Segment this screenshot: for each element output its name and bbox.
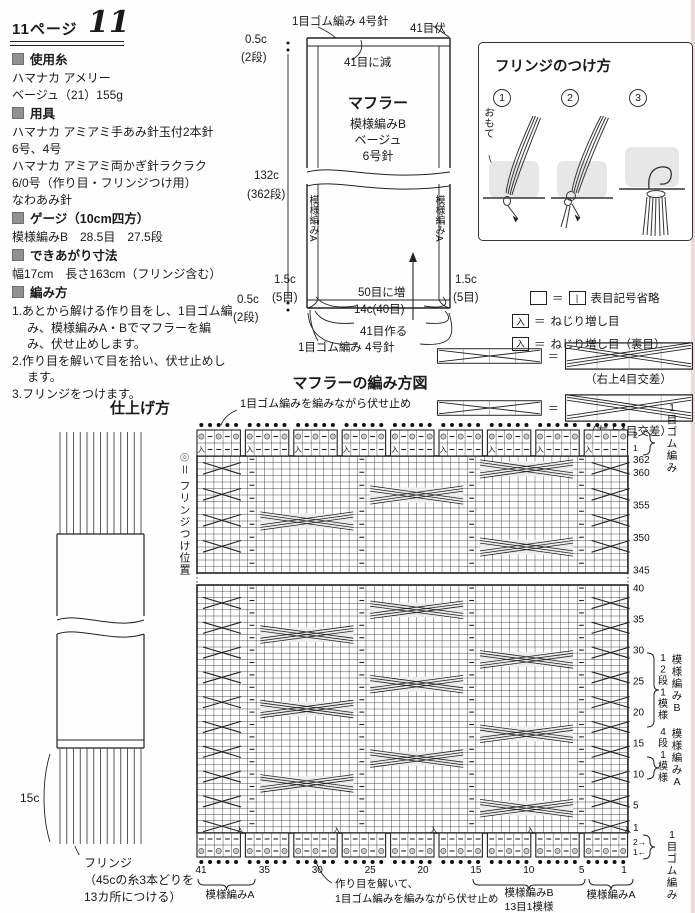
schematic-bottom-rib-label: 1目ゴム編み 4号針 [298, 339, 395, 355]
yarn-line: ベージュ（21）155g [12, 87, 234, 104]
width-label: 14c(40目) [354, 301, 405, 317]
section-bullet-icon [12, 107, 24, 119]
dim-bottom-rib-rows: (2段) [233, 309, 259, 325]
cable-legend: ＝ （右上4目交差） ＝ [437, 342, 693, 446]
row-number: 40 [633, 584, 645, 595]
knit-reference-icon: | [569, 291, 586, 305]
patternB-name: 模様編みB [672, 654, 683, 714]
tools-line: ハマナカ アミアミ両かぎ針ラクラク [12, 158, 234, 175]
piece-color: ベージュ [333, 131, 423, 148]
tools-header: 用具 [12, 106, 234, 123]
direction-arrow-icon [409, 252, 417, 262]
chart-bottom-note: 1目ゴム編みを編みながら伏せ止め [335, 892, 498, 905]
dim-body-rows: (362段) [247, 186, 285, 202]
col-number: 10 [523, 865, 535, 876]
decrease-symbol: 入 [488, 445, 496, 454]
schematic-decrease-label: 41目に減 [344, 54, 391, 70]
cable-right-caption: （右上4目交差） [585, 371, 693, 387]
increase-symbol: 入 [236, 826, 244, 835]
row-number: 30 [633, 646, 645, 657]
increase-symbol: 入 [333, 826, 341, 835]
bracket-label: 模様編みB [504, 886, 553, 899]
knitting-chart: 入入入入入入入入入入入入入入21362360355350345403530252… [185, 395, 690, 913]
increase-label: 50目に増 [358, 284, 405, 300]
side-pattern-right: 模様編みA [431, 195, 446, 242]
dim-top-rib: 0.5c [245, 34, 267, 46]
row-number: 20 [633, 708, 645, 719]
cable-right-cross-icon [565, 342, 693, 370]
col-number: 30 [312, 865, 324, 876]
knit-symbol-icon [530, 291, 547, 305]
step-1-badge: 1 [493, 89, 511, 107]
size-line: 幅17cm 長さ163cm（フリンジ含む） [12, 266, 234, 283]
row-number: 360 [633, 468, 650, 479]
col-number: 20 [418, 865, 430, 876]
fringe-note: フリンジ （45cの糸3本どりを 13カ所につける） [84, 855, 194, 906]
legend-row: 入 ＝ ねじり増し目 [512, 313, 666, 329]
pull-arrow-icon [513, 216, 519, 223]
cable-chart-symbol-icon [437, 400, 542, 416]
fringe-length-label: 15c [20, 791, 39, 805]
chart-bottom-note: 作り目を解いて、 [335, 877, 418, 890]
page-number-label: 11ページ [12, 18, 78, 39]
section-bullet-icon [12, 212, 24, 224]
yarn-line: ハマナカ アメリー [12, 70, 234, 87]
fringe-position-note: ◎＝ フリンジつけ位置 [176, 450, 192, 576]
pattern-number: 11 [88, 8, 130, 38]
piece-name: マフラー [333, 92, 423, 113]
row-number: 10 [633, 770, 645, 781]
col-number: 15 [470, 865, 482, 876]
legend-text: ねじり増し目 [551, 313, 620, 329]
col-number: 35 [259, 865, 271, 876]
cable-legend-row: ＝ [437, 394, 693, 422]
bracket-label: 模様編みA [586, 888, 635, 901]
section-bullet-icon [12, 53, 24, 65]
piece-needle: 6号針 [333, 147, 423, 164]
materials-column: 使用糸 ハマナカ アメリー ベージュ（21）155g 用具 ハマナカ アミアミ手… [12, 50, 234, 402]
tools-line: 6号、4号 [12, 141, 234, 158]
decrease-symbol: 入 [440, 445, 448, 454]
row-number: 5 [633, 801, 639, 812]
rib-row-number: 2→ [633, 837, 646, 847]
bracket-label: 13目1模様 [504, 900, 554, 913]
howto-header: 編み方 [12, 285, 234, 302]
gauge-line: 模様編みB 28.5目 27.5段 [12, 229, 234, 246]
rib-bottom-label: 1目ゴム編み [667, 829, 678, 901]
decrease-symbol: 入 [585, 445, 593, 454]
dim-side-left: 1.5c [274, 274, 296, 286]
finishing-diagram [20, 420, 200, 855]
dim-body-length: 132c [254, 170, 279, 182]
dim-top-rib-rows: (2段) [241, 49, 267, 65]
increase-symbol: 入 [527, 826, 535, 835]
equals-sign: ＝ [548, 348, 559, 364]
dim-side-right: 1.5c [455, 274, 477, 286]
row-number: 362 [633, 455, 650, 466]
cable-left-cross-icon [565, 394, 693, 422]
decrease-symbol: 入 [536, 445, 544, 454]
cast-on-label: 41目作る [360, 323, 407, 339]
increase-symbol: 入 [430, 826, 438, 835]
tools-line: なわあみ針 [12, 192, 234, 209]
row-number: 25 [633, 677, 645, 688]
patternB-repeat: 12段1模様 [658, 653, 668, 722]
row-number: 35 [633, 615, 645, 626]
size-header: できあがり寸法 [12, 248, 234, 265]
m1-twisted-icon: 入 [512, 314, 529, 328]
decrease-symbol: 入 [246, 445, 254, 454]
front-side-label: おもて [482, 107, 497, 139]
howto-step: 2.作り目を解いて目を拾い、伏せ止めします。 [12, 353, 234, 386]
tools-line: ハマナカ アミアミ手あみ針玉付2本針 [12, 124, 234, 141]
section-bullet-icon [12, 249, 24, 261]
col-number: 25 [365, 865, 377, 876]
patternA-repeat: 4段1模様 [658, 727, 668, 784]
header-rule [10, 41, 124, 46]
chart-top-note: 1目ゴム編みを編みながら伏せ止め [240, 396, 411, 410]
chart-title: マフラーの編み方図 [240, 372, 480, 393]
section-bullet-icon [12, 286, 24, 298]
cable-legend-row: ＝ [437, 342, 693, 370]
schematic-top-rib-label: 1目ゴム編み 4号針 [292, 13, 389, 29]
fringe-panel-title: フリンジのつけ方 [495, 55, 611, 76]
col-number: 1 [621, 865, 627, 876]
row-number: 1 [633, 823, 639, 834]
increase-symbol: 入 [623, 826, 631, 835]
patternA-name: 模様編みA [672, 728, 683, 788]
schematic-bindoff-label: 41目伏 [410, 20, 446, 36]
col-number: 5 [579, 865, 585, 876]
gauge-header: ゲージ（10cm四方） [12, 211, 234, 228]
row-number: 15 [633, 739, 645, 750]
rib-row-number: 1← [633, 847, 646, 857]
equals-sign: ＝ [534, 313, 546, 329]
decrease-symbol: 入 [294, 445, 302, 454]
row-number: 350 [633, 533, 650, 544]
equals-sign: ＝ [552, 290, 564, 306]
col-number: 41 [195, 865, 207, 876]
dim-side-left-sts: (5目) [272, 289, 298, 305]
fringe-position-icon: ◎ [178, 450, 190, 464]
decrease-symbol: 入 [391, 445, 399, 454]
dim-side-right-sts: (5目) [453, 289, 479, 305]
legend-text: 表目記号省略 [591, 290, 660, 306]
legend-row: ＝ | 表目記号省略 [530, 290, 666, 306]
pattern-page: { "header": {"page_label": "11ページ", "num… [0, 0, 695, 913]
cable-chart-symbol-icon [437, 348, 542, 364]
piece-pattern: 模様編みB [333, 115, 423, 132]
tools-line: 6/0号（作り目・フリンジつけ用） [12, 175, 234, 192]
cable-left-caption: （左上4目交差） [585, 423, 693, 439]
step-2-badge: 2 [561, 89, 579, 107]
finishing-title: 仕上げ方 [95, 397, 185, 418]
bracket-label: 模様編みA [205, 888, 254, 901]
fringe-instructions-panel: フリンジのつけ方 1 2 3 おもて [478, 42, 693, 241]
dim-bottom-rib: 0.5c [237, 294, 259, 306]
row-number: 355 [633, 501, 650, 512]
step-3-badge: 3 [629, 89, 647, 107]
row-number: 345 [633, 566, 650, 577]
howto-step: 1.あとから解ける作り目をし、1目ゴム編み、模様編みA・Bでマフラーを編み、伏せ… [12, 303, 234, 353]
decrease-symbol: 入 [343, 445, 351, 454]
side-pattern-left: 模様編みA [305, 195, 320, 242]
yarn-header: 使用糸 [12, 52, 234, 69]
equals-sign: ＝ [548, 400, 559, 416]
